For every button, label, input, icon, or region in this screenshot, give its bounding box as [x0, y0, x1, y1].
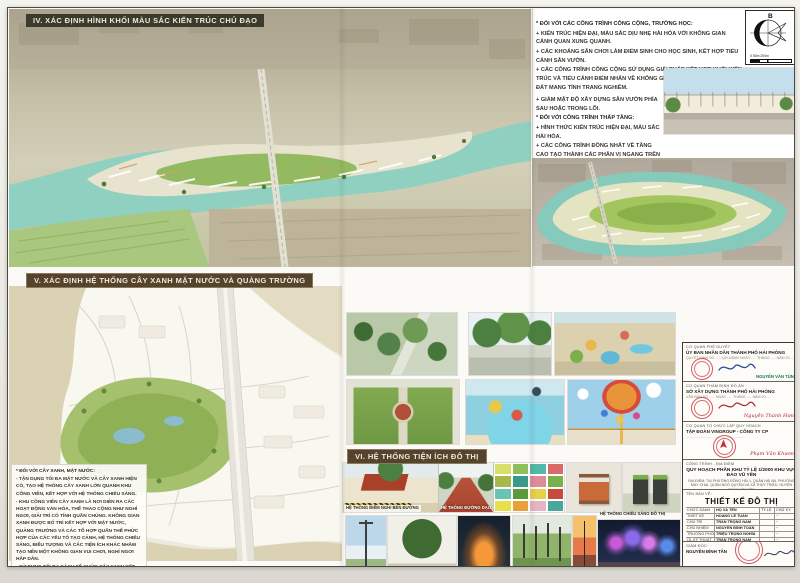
organizer-box: CƠ QUAN TỔ CHỨC LẬP QUY HOẠCH TẬP ĐOÀN V… [683, 422, 795, 460]
paving-swatch [547, 463, 565, 475]
staff-name: NGUYỄN ĐÌNH TOÀN [714, 526, 759, 531]
col-role: CHỨC DANH [686, 508, 714, 513]
organizer-note: ........................................… [686, 435, 795, 439]
staff-name: HOÀNG LÊ TUẤN [714, 514, 759, 519]
project-name: QUY HOẠCH PHÂN KHU TỶ LỆ 1/2000 KHU VỰC … [686, 468, 795, 478]
signature-icon [717, 361, 757, 375]
staff-scale [759, 532, 774, 537]
col-sign: CHỮ KÝ [774, 508, 795, 513]
col-name: HỌ VÀ TÊN [714, 508, 759, 513]
caption-rest-stop: HỆ THỐNG ĐIỂM NGHỈ BÊN ĐƯỜNG [344, 505, 421, 512]
staff-row: THIẾT KẾ HOÀNG LÊ TUẤN ~ [686, 513, 795, 519]
staff-scale [759, 526, 774, 531]
photo-amusement-park-aerial [555, 313, 675, 375]
stamp-sail-icon [715, 437, 732, 454]
greenery-notes-block: * ĐỐI VỚI CÂY XANH, MẶT NƯỚC: - TẬN DỤNG… [11, 464, 147, 567]
paving-swatch [547, 500, 565, 512]
recycle-bin-shape [633, 475, 648, 504]
paving-swatch [512, 475, 530, 487]
col-scale: TỶ LỆ [759, 508, 774, 513]
photo-park-aerial [347, 313, 457, 375]
organizer-label: CƠ QUAN TỔ CHỨC LẬP QUY HOẠCH [686, 424, 795, 428]
main-aerial-art [9, 9, 531, 267]
section-v-title: V. XÁC ĐỊNH HỆ THỐNG CÂY XANH MẶT NƯỚC V… [34, 276, 305, 285]
project-label: CÔNG TRÌNH - ĐỊA ĐIỂM [686, 462, 795, 466]
note-line: + HÌNH THỨC KIẾN TRÚC HIỆN ĐẠI, MÀU SẮC … [536, 124, 662, 141]
staff-role: THIẾT KẾ [686, 514, 714, 519]
greenery-notes-title: * ĐỐI VỚI CÂY XANH, MẶT NƯỚC: [16, 468, 142, 475]
caption-walkway: HỆ THỐNG ĐƯỜNG DẠO [441, 505, 491, 510]
staff-scale [759, 520, 774, 525]
paving-swatch [494, 500, 512, 512]
approval-signer: NGUYỄN VĂN TÙNG [756, 374, 795, 379]
main-aerial-render [9, 9, 531, 267]
sunset-pole-shape [584, 521, 586, 565]
scanned-planning-board: { "section_iv": { "title": "IV. XÁC ĐỊNH… [0, 0, 800, 583]
photo-formal-square-aerial [347, 380, 459, 444]
paving-swatch [547, 488, 565, 500]
photo-sunset-lamp-post [573, 516, 596, 567]
photo-street-lamp [346, 516, 386, 567]
staff-row: TRƯỞNG PHÒNG TRIỆU TRỌNG NGHĨA ~ [686, 531, 795, 537]
appraisal-signer: Nguyễn Thành Hưng [744, 413, 795, 419]
presentation-sheet: IV. XÁC ĐỊNH HÌNH KHỐI MÀU SẮC KIẾN TRÚC… [7, 7, 795, 567]
staff-row: CHỦ NHIỆM NGUYỄN ĐÌNH TOÀN ~ [686, 525, 795, 531]
lamp-pole-shape [365, 520, 367, 565]
compass-north-label: B [768, 13, 773, 20]
photo-recycling-bins [623, 463, 680, 512]
note-line: - TẬN DỤNG TỐI ĐA MẶT NƯỚC VÀ CÂY XANH H… [16, 476, 142, 498]
appraisal-org: SỞ XÂY DỰNG THÀNH PHỐ HẢI PHÒNG [686, 389, 795, 394]
drawing-name-label: TÊN BẢN VẼ: [686, 492, 795, 496]
paving-swatch [494, 475, 512, 487]
photo-wooden-litter-bin [567, 463, 621, 512]
scale-ticks: 0 50m 200m [750, 54, 792, 58]
staff-table-header: CHỨC DANH HỌ VÀ TÊN TỶ LỆ CHỮ KÝ [686, 507, 795, 513]
signature-icon [717, 399, 757, 413]
appraisal-label: CƠ QUAN THẨM ĐỊNH ĐỒ ÁN [686, 384, 795, 388]
approval-box: CƠ QUAN PHÊ DUYỆT ỦY BAN NHÂN DÂN THÀNH … [683, 343, 795, 382]
signature-icon [763, 548, 795, 560]
staff-role: TRƯỞNG PHÒNG [686, 532, 714, 537]
organizer-org: TẬP ĐOÀN VINGROUP - CÔNG TY CP [686, 429, 795, 434]
villa-street-render [664, 68, 794, 134]
photo-carousel-ride [568, 380, 675, 444]
north-arrow-box: B 0 50m 200m [745, 10, 795, 65]
paving-swatch [529, 488, 547, 500]
staff-row: CHỦ TRÌ TRẦN TRỌNG NAM ~ [686, 519, 795, 525]
section-iv-title: IV. XÁC ĐỊNH HÌNH KHỐI MÀU SẮC KIẾN TRÚC… [33, 16, 257, 25]
paving-swatch [512, 488, 530, 500]
recycle-bin-shape [653, 475, 668, 504]
scale-bar: 0 50m 200m [750, 54, 792, 62]
staff-sign: ~ [774, 526, 795, 531]
note-line: - KHU CÔNG VIÊN CÂY XANH LÀ NƠI DIỄN RA … [16, 499, 142, 564]
light-pole-shape [523, 524, 525, 559]
photo-illuminated-bench [458, 516, 510, 567]
staff-role: CHỦ NHIỆM [686, 526, 714, 531]
photo-night-light-trees [598, 520, 680, 567]
staff-role: CHỦ TRÌ [686, 520, 714, 525]
note-line: + GIẢM MẬT ĐỘ XÂY DỰNG SÂN VƯỜN PHÍA SAU… [536, 96, 662, 113]
red-stamp-icon [690, 357, 715, 382]
drawing-title: THIẾT KẾ ĐÔ THỊ [686, 497, 795, 506]
paving-swatch [529, 475, 547, 487]
director-box: GIÁM ĐỐC: NGUYỄN ĐÌNH TÂN [683, 542, 795, 567]
paving-swatch [494, 488, 512, 500]
litter-bin-shape [579, 474, 609, 504]
staff-name: TRẦN TRỌNG NAM [714, 520, 759, 525]
project-location: ĐỊA ĐIỂM: TẠI PHƯỜNG ĐÔNG HẢI 1, QUẬN HẢ… [686, 479, 795, 490]
note-line: - SỬ DỤNG TỐI ĐA CÁCH TỔ CHỨC CÂY XANH K… [16, 564, 142, 567]
photo-water-park [466, 380, 564, 444]
section-vi-title: VI. HỆ THỐNG TIỆN ÍCH ĐÔ THỊ [355, 452, 479, 461]
paving-swatch [529, 463, 547, 475]
paving-pattern-swatches [494, 463, 564, 512]
photo-park-light-poles [513, 516, 571, 567]
photo-decorated-tree [388, 516, 456, 567]
island-topview-render [532, 158, 794, 266]
drawing-title-block: CƠ QUAN PHÊ DUYỆT ỦY BAN NHÂN DÂN THÀNH … [682, 342, 795, 567]
paving-swatch [529, 500, 547, 512]
approval-label: CƠ QUAN PHÊ DUYỆT [686, 345, 795, 349]
photo-tree-lined-path [469, 313, 551, 375]
organizer-signer: Phạm Văn Khương [750, 451, 795, 457]
red-stamp-icon [690, 396, 714, 420]
section-iv-header: IV. XÁC ĐỊNH HÌNH KHỐI MÀU SẮC KIẾN TRÚC… [26, 14, 264, 27]
staff-sign: ~ [774, 514, 795, 519]
drawing-box: TÊN BẢN VẼ: THIẾT KẾ ĐÔ THỊ CHỨC DANH HỌ… [683, 490, 795, 542]
company-stamp-icon [734, 542, 764, 565]
project-box: CÔNG TRÌNH - ĐỊA ĐIỂM QUY HOẠCH PHÂN KHU… [683, 460, 795, 490]
notes-lowrise-title: * ĐỐI VỚI CÔNG TRÌNH THẤP TẦNG: [536, 114, 662, 123]
approval-org: ỦY BAN NHÂN DÂN THÀNH PHỐ HẢI PHÒNG [686, 350, 795, 355]
staff-sign: ~ [774, 532, 795, 537]
staff-table: CHỨC DANH HỌ VÀ TÊN TỶ LỆ CHỮ KÝ THIẾT K… [686, 507, 795, 542]
note-line: + CÁC KHOẢNG SÂN CHƠI LÀM ĐIỂM SINH CHO … [536, 48, 742, 65]
section-v-header: V. XÁC ĐỊNH HỆ THỐNG CÂY XANH MẶT NƯỚC V… [26, 273, 313, 288]
vingroup-stamp-icon [713, 435, 736, 458]
caption-lighting: HỆ THỐNG CHIẾU SÁNG ĐÔ THỊ [598, 511, 667, 518]
note-line: + KIẾN TRÚC HIỆN ĐẠI, MÀU SẮC DỊU NHẸ HÀ… [536, 30, 742, 47]
notes-public-title: * ĐỐI VỚI CÁC CÔNG TRÌNH CÔNG CỘNG, TRƯỜ… [536, 20, 742, 29]
island-topview-art [532, 158, 794, 266]
staff-scale [759, 514, 774, 519]
staff-name: TRIỆU TRỌNG NGHĨA [714, 532, 759, 537]
paving-swatch [547, 475, 565, 487]
paving-swatch [494, 463, 512, 475]
paving-swatch [512, 500, 530, 512]
scale-bar-strip [750, 59, 792, 63]
compass-rose-icon: B [746, 11, 794, 51]
staff-sign: ~ [774, 520, 795, 525]
paving-swatch [512, 463, 530, 475]
section-vi-header: VI. HỆ THỐNG TIỆN ÍCH ĐÔ THỊ [347, 449, 487, 464]
appraisal-box: CƠ QUAN THẨM ĐỊNH ĐỒ ÁN SỞ XÂY DỰNG THÀN… [683, 382, 795, 421]
